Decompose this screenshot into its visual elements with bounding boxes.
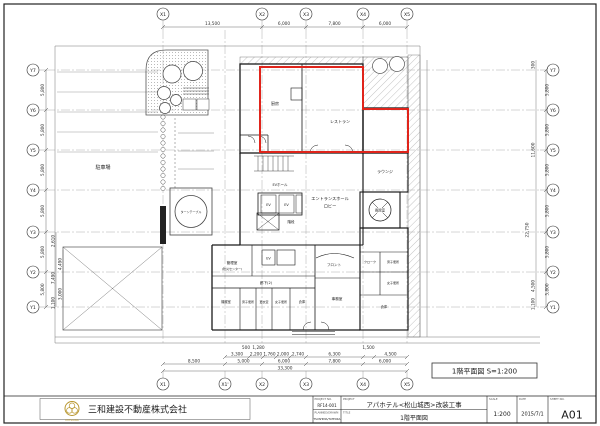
- title-block: PROJECT NO. RF14-001 PLANNED/DRAWN TSUSH…: [313, 396, 583, 423]
- svg-text:X1: X1: [160, 12, 166, 18]
- dim-label: 5,800: [545, 124, 551, 137]
- dim-label: 2,740: [292, 352, 305, 358]
- svg-text:Y7: Y7: [549, 68, 556, 74]
- dim-label: 5,800: [40, 124, 46, 137]
- room-label-stairs: 階段: [288, 219, 296, 224]
- dim-left: 5,800 5,800 5,800 5,800 5,800 5,800 2,61…: [40, 68, 64, 309]
- svg-text:X5: X5: [404, 382, 410, 388]
- dim-label: 5,800: [545, 246, 551, 259]
- room-label-lounge: ラウンジ: [377, 168, 393, 174]
- dim-label: 4,500: [531, 280, 537, 293]
- grid-bubble: Y3: [27, 226, 46, 238]
- dim-label: 6,000: [379, 359, 392, 365]
- dim-label: 5,800: [40, 205, 46, 218]
- dim-label: 7,800: [328, 359, 341, 365]
- grid-bubble: X1': [219, 371, 231, 390]
- grid-bubble: Y3: [540, 226, 559, 238]
- svg-text:Y4: Y4: [549, 188, 556, 194]
- svg-text:Y3: Y3: [549, 230, 556, 236]
- room-label-womens-wc: 女子便所: [387, 280, 399, 285]
- drawing-title: 1階平面図: [400, 414, 428, 422]
- dim-label: 1,760: [263, 352, 276, 358]
- grid-bubble: Y1: [540, 301, 559, 313]
- dim-label: 7,800: [328, 21, 341, 27]
- dim-label: 5,800: [545, 164, 551, 177]
- room-label-entrance-hall: エントランスホール: [311, 196, 349, 202]
- dim-label: 7,490: [51, 272, 57, 285]
- room-label-lobby: ロビー: [324, 203, 337, 209]
- svg-text:Y6: Y6: [549, 108, 556, 114]
- room-label-office: 事務室: [332, 296, 343, 301]
- dim-label: 6,300: [328, 352, 341, 358]
- svg-text:X3: X3: [303, 382, 309, 388]
- room-label-cloak: クローク: [364, 259, 376, 264]
- grid-bubbles-bottom: X1 X1' X2 X3 X4 X5: [157, 371, 413, 390]
- room-label-mens-wc: 男子便所: [387, 259, 399, 264]
- room-label-ev: EV: [266, 257, 271, 261]
- dim-label: 6,000: [278, 359, 291, 365]
- date-label: DATE: [519, 397, 526, 401]
- room-label-parking: 駐車場: [95, 164, 110, 171]
- svg-text:X4: X4: [360, 382, 366, 388]
- svg-text:Y2: Y2: [29, 270, 36, 276]
- dim-label: 6,000: [278, 21, 291, 27]
- dim-label: 500: [242, 345, 250, 351]
- grid-bubble: Y7: [27, 64, 46, 76]
- room-label-machine: 機械室: [221, 299, 231, 304]
- title-label: TITLE: [342, 411, 351, 415]
- dim-label: 11,600: [531, 142, 537, 157]
- dim-label: 2,200: [250, 352, 263, 358]
- dim-label: 1,100: [51, 297, 57, 310]
- svg-text:Y1: Y1: [29, 305, 36, 311]
- grid-bubble: X3: [300, 371, 312, 390]
- grid-bubble: Y5: [27, 144, 46, 156]
- grid-bubble: X1: [157, 371, 169, 390]
- project-no: RF14-001: [317, 403, 337, 408]
- project-no-label: PROJECT NO.: [315, 397, 332, 401]
- svg-text:X2: X2: [259, 382, 265, 388]
- company-block: MITSUWA 三和建設不動産株式会社: [40, 399, 250, 422]
- room-label-ev: EV: [284, 203, 289, 207]
- svg-text:Y2: Y2: [549, 270, 556, 276]
- room-label-ev: EV: [266, 203, 271, 207]
- svg-text:Y5: Y5: [29, 148, 36, 154]
- wall-segment: [160, 206, 166, 244]
- date-value: 2015/7/1: [521, 412, 543, 418]
- room-label-storage: 倉庫: [299, 299, 306, 304]
- legend-text: 1階平面図 S=1:200: [452, 367, 517, 376]
- dim-label: 22,750: [525, 222, 531, 237]
- grid-bubble: Y2: [540, 266, 559, 278]
- grid-bubble: Y6: [540, 104, 559, 116]
- grid-lines: [46, 30, 540, 345]
- scale-label: SCALE: [489, 397, 498, 401]
- room-label-corridor: 廊下(2): [260, 280, 273, 285]
- dim-label: 5,800: [40, 164, 46, 177]
- grid-bubble: Y1: [27, 301, 46, 313]
- svg-text:X4: X4: [360, 12, 366, 18]
- grid-bubble: Y5: [540, 144, 559, 156]
- dim-label: 1,500: [362, 345, 375, 351]
- svg-text:Y7: Y7: [29, 68, 36, 74]
- room-labels: 厨房 レストラン ラウンジ 風除室 エントランスホール ロビー EVホール EV…: [221, 100, 399, 309]
- dim-right: 5,800 5,800 5,800 5,800 5,800 5,800 300 …: [525, 60, 551, 310]
- grid-bubble: Y2: [27, 266, 46, 278]
- dim-label: 5,800: [40, 283, 46, 296]
- dim-label: 13,500: [205, 21, 220, 27]
- svg-text:X3: X3: [303, 12, 309, 18]
- dim-bottom: 500 1,280 1,500 3,300 2,200 1,760 2,000 …: [161, 345, 409, 373]
- dim-label: 1,280: [252, 345, 265, 351]
- dim-label: 6,000: [379, 21, 392, 27]
- svg-text:X1: X1: [160, 382, 166, 388]
- dim-label: 5,800: [40, 84, 46, 97]
- company-mark: MITSUWA: [65, 418, 78, 422]
- room-label-restaurant: レストラン: [330, 118, 350, 124]
- grid-bubble: X5: [401, 371, 413, 390]
- room-label-turntable: ターンテーブル: [181, 209, 202, 214]
- grid-bubbles-left: Y7 Y6 Y5 Y4 Y3 Y2 Y1: [27, 64, 46, 313]
- grid-bubble: Y4: [540, 184, 559, 196]
- room-label-admin: 管理室: [227, 260, 238, 265]
- room-label-kitchen: 厨房: [271, 100, 279, 106]
- svg-text:Y5: Y5: [549, 148, 556, 154]
- void-area: [63, 247, 162, 330]
- site-lines: [55, 46, 540, 343]
- planned-label: PLANNED/DRAWN: [315, 411, 339, 415]
- room-label-womens-wc: 女子便所: [275, 299, 287, 304]
- dim-label: 4,500: [384, 352, 397, 358]
- grid-bubble: X2: [256, 371, 268, 390]
- room-label-changing: 更衣室: [259, 299, 268, 304]
- dim-label: 8,500: [188, 359, 201, 365]
- room-label-storage: 倉庫: [381, 304, 388, 309]
- project-label: PROJECT: [343, 397, 355, 401]
- svg-text:X5: X5: [404, 12, 410, 18]
- project-name: アパホテル<松山城西>改装工事: [366, 400, 462, 409]
- grid-bubble: X4: [357, 371, 369, 390]
- sheet-no: A01: [561, 409, 583, 422]
- dim-label: 1,100: [531, 298, 537, 311]
- room-label-admin-sub: (防災センター): [222, 266, 242, 271]
- dim-label: 5,800: [545, 205, 551, 218]
- room-label-mens-wc: 男子便所: [242, 299, 254, 304]
- scale-value: 1:200: [493, 411, 510, 418]
- dim-label: 2,610: [51, 235, 57, 248]
- sheet-no-label: SHEET NO.: [550, 397, 565, 401]
- dim-label: 3,300: [231, 352, 244, 358]
- company-logo-icon: [65, 402, 79, 416]
- svg-text:Y1: Y1: [549, 305, 556, 311]
- equipment-yard: [146, 50, 209, 115]
- company-name: 三和建設不動産株式会社: [88, 404, 187, 416]
- drawing-sheet: X1 X2 X3 X4 X5 13,500 6,000 7,800 6,000 …: [0, 0, 600, 426]
- grid-bubble: Y6: [27, 104, 46, 116]
- dim-label: 33,300: [277, 366, 292, 372]
- dim-label: 5,800: [40, 246, 46, 259]
- svg-text:Y3: Y3: [29, 230, 36, 236]
- grid-bubble: Y4: [27, 184, 46, 196]
- svg-text:Y4: Y4: [29, 188, 36, 194]
- dim-label: 300: [531, 61, 537, 69]
- grid-bubble: Y7: [540, 64, 559, 76]
- floor-plan-svg: X1 X2 X3 X4 X5 13,500 6,000 7,800 6,000 …: [0, 0, 600, 426]
- dim-label: 5,000: [237, 359, 250, 365]
- dim-label: 3,000: [58, 288, 64, 301]
- svg-text:Y6: Y6: [29, 108, 36, 114]
- legend-box: 1階平面図 S=1:200: [432, 363, 537, 378]
- dim-label: 5,800: [545, 283, 551, 296]
- room-label-front: フロント: [327, 262, 342, 267]
- dim-label: 5,800: [545, 84, 551, 97]
- svg-text:X2: X2: [259, 12, 265, 18]
- room-label-windbreak: 風除室: [375, 208, 386, 213]
- svg-text:X1': X1': [221, 382, 228, 388]
- dim-top: 13,500 6,000 7,800 6,000: [161, 21, 409, 29]
- grid-bubbles-right: Y7 Y6 Y5 Y4 Y3 Y2 Y1: [540, 64, 559, 313]
- room-label-ev-hall: EVホール: [272, 182, 288, 187]
- dim-label: 2,000: [277, 352, 290, 358]
- dim-label: 4,490: [58, 258, 64, 271]
- planned-value: TSUSHIMA/TATEOKA: [313, 417, 341, 421]
